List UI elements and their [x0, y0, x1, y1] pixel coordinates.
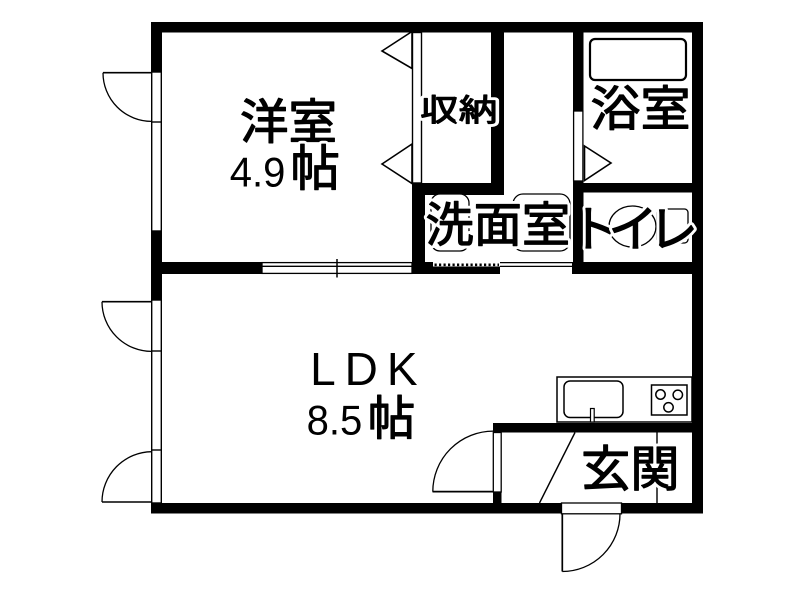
svg-text:8.5: 8.5 [307, 397, 363, 444]
svg-text:4.9: 4.9 [230, 149, 286, 196]
svg-text:LDK: LDK [310, 343, 426, 395]
